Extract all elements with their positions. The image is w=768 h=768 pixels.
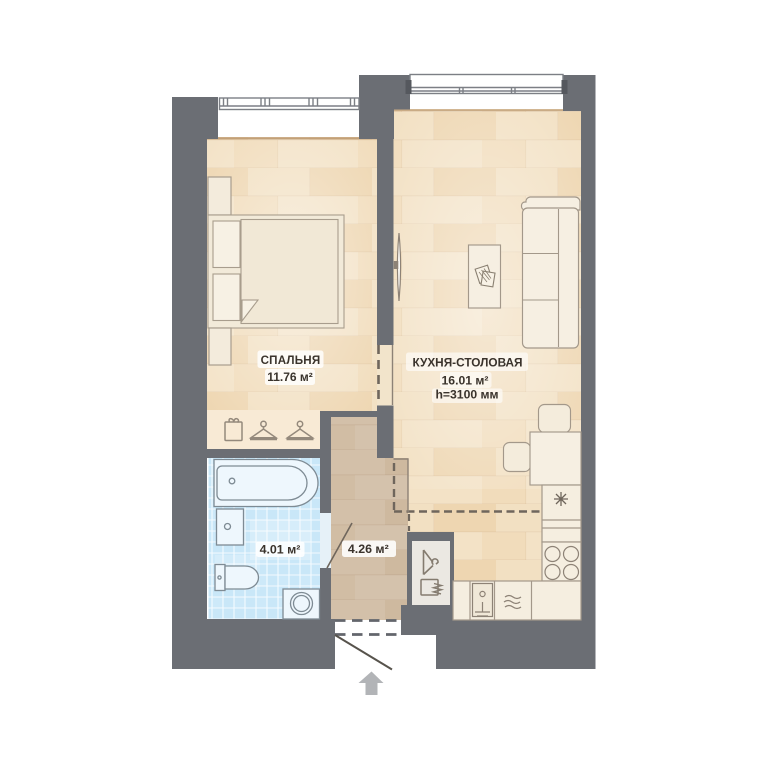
- svg-text:КУХНЯ-СТОЛОВАЯ: КУХНЯ-СТОЛОВАЯ: [412, 356, 522, 370]
- svg-text:4.26 м²: 4.26 м²: [348, 542, 389, 556]
- svg-text:11.76 м²: 11.76 м²: [267, 370, 313, 384]
- svg-text:4.01 м²: 4.01 м²: [260, 543, 301, 557]
- svg-text:h=3100 мм: h=3100 мм: [435, 387, 498, 401]
- svg-text:16.01 м²: 16.01 м²: [442, 373, 489, 387]
- svg-text:СПАЛЬНЯ: СПАЛЬНЯ: [261, 354, 321, 367]
